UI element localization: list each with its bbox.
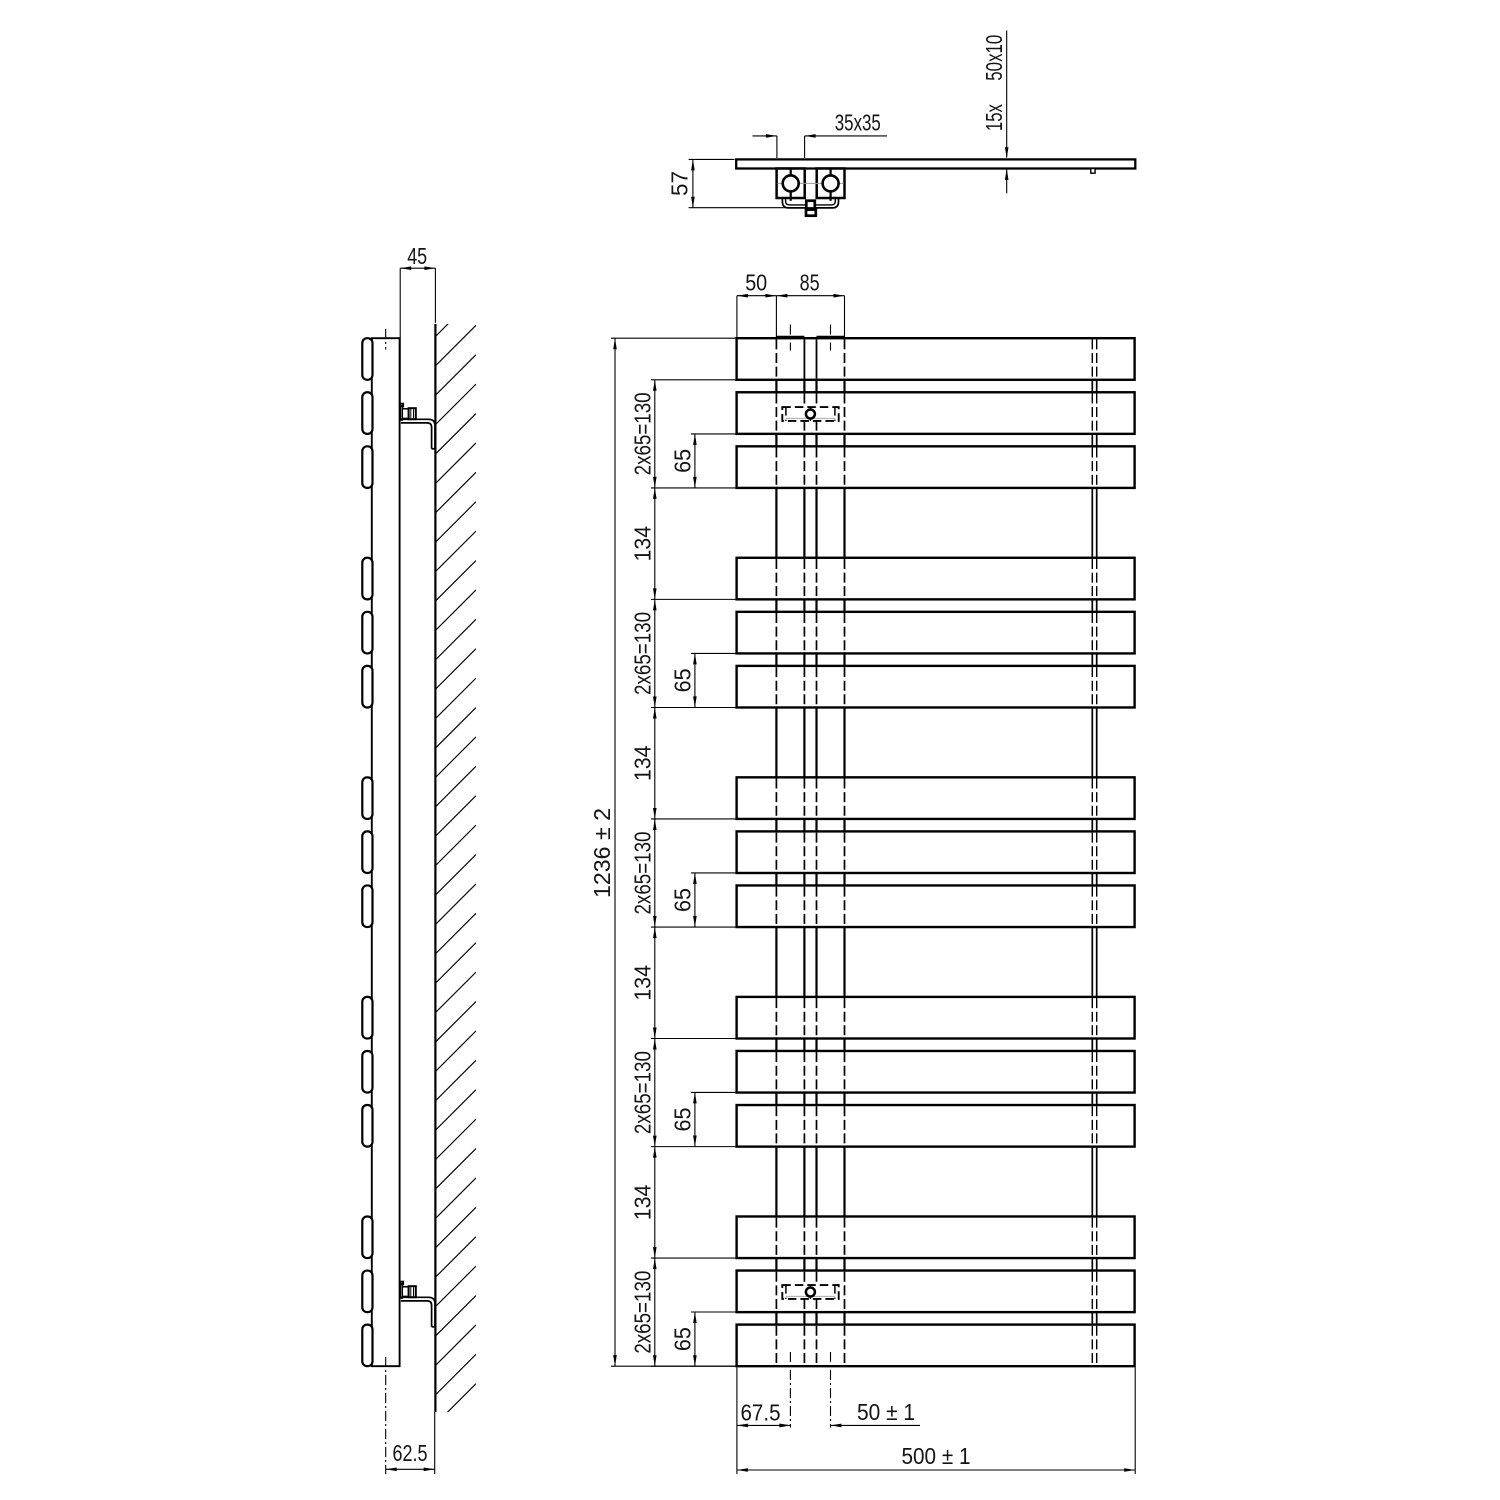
svg-text:50 ± 1: 50 ± 1 bbox=[857, 1399, 915, 1425]
svg-text:1236 ± 2: 1236 ± 2 bbox=[589, 808, 615, 898]
svg-text:134: 134 bbox=[630, 965, 656, 1001]
svg-text:134: 134 bbox=[630, 1184, 656, 1220]
svg-text:62.5: 62.5 bbox=[393, 1440, 428, 1466]
svg-text:2x65=130: 2x65=130 bbox=[630, 392, 656, 475]
svg-text:2x65=130: 2x65=130 bbox=[630, 612, 656, 695]
svg-text:65: 65 bbox=[670, 668, 696, 692]
svg-text:500 ± 1: 500 ± 1 bbox=[902, 1443, 971, 1469]
svg-text:67.5: 67.5 bbox=[741, 1400, 781, 1426]
svg-text:2x65=130: 2x65=130 bbox=[630, 1271, 656, 1354]
svg-text:57: 57 bbox=[667, 171, 693, 196]
svg-text:65: 65 bbox=[670, 1327, 696, 1351]
svg-text:134: 134 bbox=[630, 526, 656, 562]
svg-text:65: 65 bbox=[670, 449, 696, 473]
svg-text:65: 65 bbox=[670, 888, 696, 912]
svg-text:85: 85 bbox=[800, 269, 820, 295]
svg-text:50x10: 50x10 bbox=[981, 35, 1007, 81]
svg-text:2x65=130: 2x65=130 bbox=[630, 832, 656, 915]
svg-text:50: 50 bbox=[745, 269, 767, 295]
svg-text:2x65=130: 2x65=130 bbox=[630, 1051, 656, 1134]
svg-text:35x35: 35x35 bbox=[835, 109, 881, 135]
svg-text:65: 65 bbox=[670, 1107, 696, 1131]
svg-text:15x: 15x bbox=[981, 104, 1007, 131]
svg-text:134: 134 bbox=[630, 745, 656, 781]
svg-text:45: 45 bbox=[407, 243, 427, 269]
